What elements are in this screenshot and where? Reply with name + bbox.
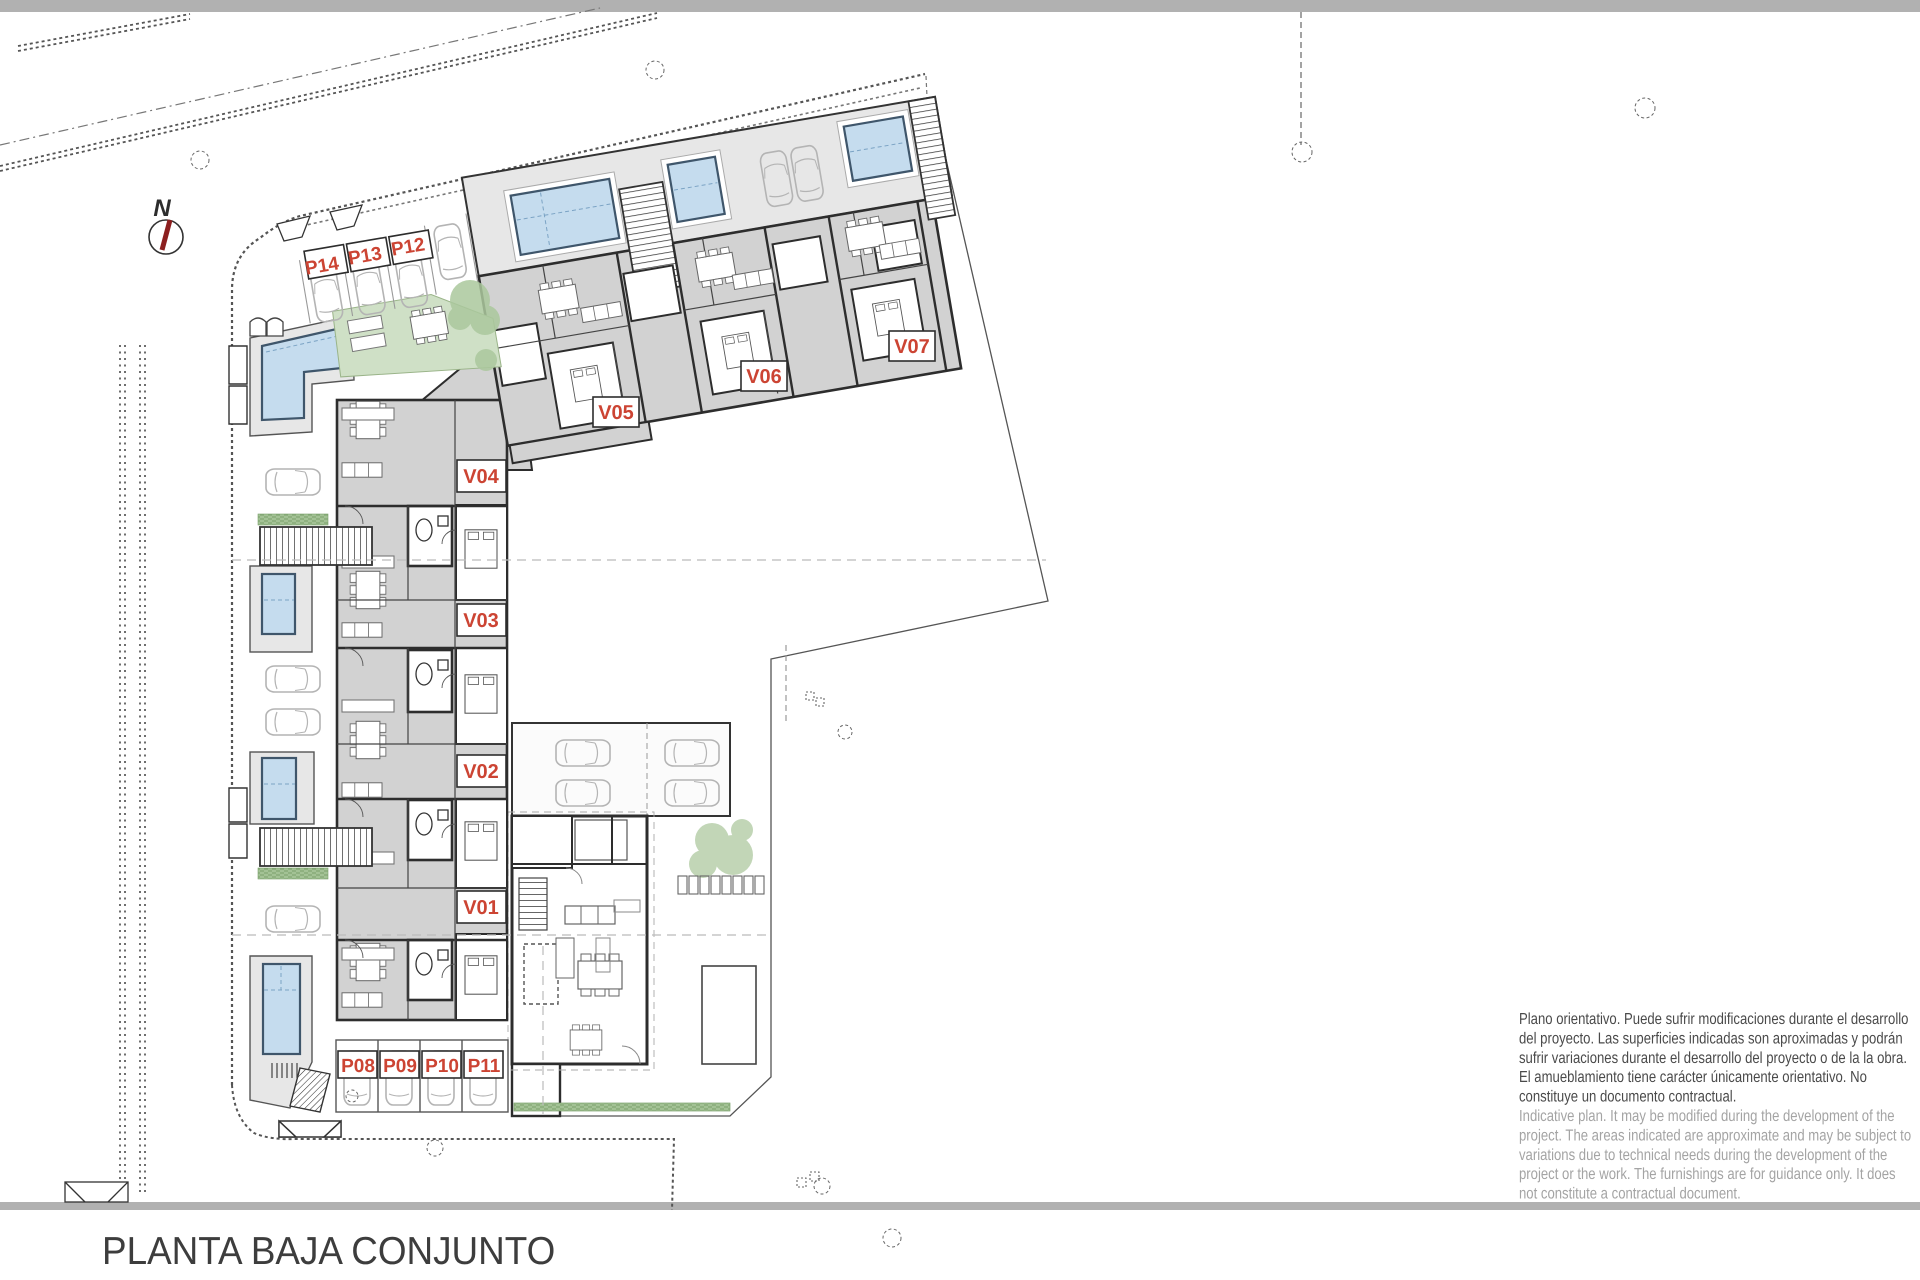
svg-text:project. The areas indicated a: project. The areas indicated are approxi… [1519, 1127, 1911, 1144]
svg-text:P10: P10 [425, 1056, 459, 1077]
svg-text:Indicative plan. It may be mod: Indicative plan. It may be modified duri… [1519, 1108, 1895, 1125]
svg-text:V07: V07 [894, 336, 930, 358]
svg-text:project or the work. The furni: project or the work. The furnishings are… [1519, 1166, 1896, 1183]
svg-text:P11: P11 [468, 1056, 501, 1077]
svg-text:V06: V06 [746, 366, 782, 388]
svg-text:constituye un documento contra: constituye un documento contractual. [1519, 1089, 1736, 1106]
svg-text:sufrir variaciones durante el: sufrir variaciones durante el desarrollo… [1519, 1050, 1907, 1067]
svg-text:El amueblamiento tiene carácte: El amueblamiento tiene carácter únicamen… [1519, 1069, 1867, 1086]
svg-text:V03: V03 [463, 610, 499, 632]
svg-text:not constitute a contractual d: not constitute a contractual document. [1519, 1186, 1741, 1203]
svg-text:del proyecto. Las superficies: del proyecto. Las superficies indicadas … [1519, 1030, 1903, 1047]
svg-text:V01: V01 [463, 897, 499, 919]
svg-text:N: N [153, 195, 171, 222]
svg-text:V05: V05 [598, 402, 634, 424]
svg-text:Plano orientativo. Puede sufri: Plano orientativo. Puede sufrir modifica… [1519, 1011, 1909, 1028]
svg-text:V04: V04 [463, 466, 499, 488]
svg-text:P08: P08 [341, 1056, 375, 1077]
svg-text:P09: P09 [383, 1056, 417, 1077]
svg-text:variations due to technical ne: variations due to technical needs during… [1519, 1147, 1887, 1164]
svg-text:V02: V02 [463, 761, 499, 783]
svg-text:PLANTA BAJA CONJUNTO: PLANTA BAJA CONJUNTO [102, 1230, 555, 1273]
